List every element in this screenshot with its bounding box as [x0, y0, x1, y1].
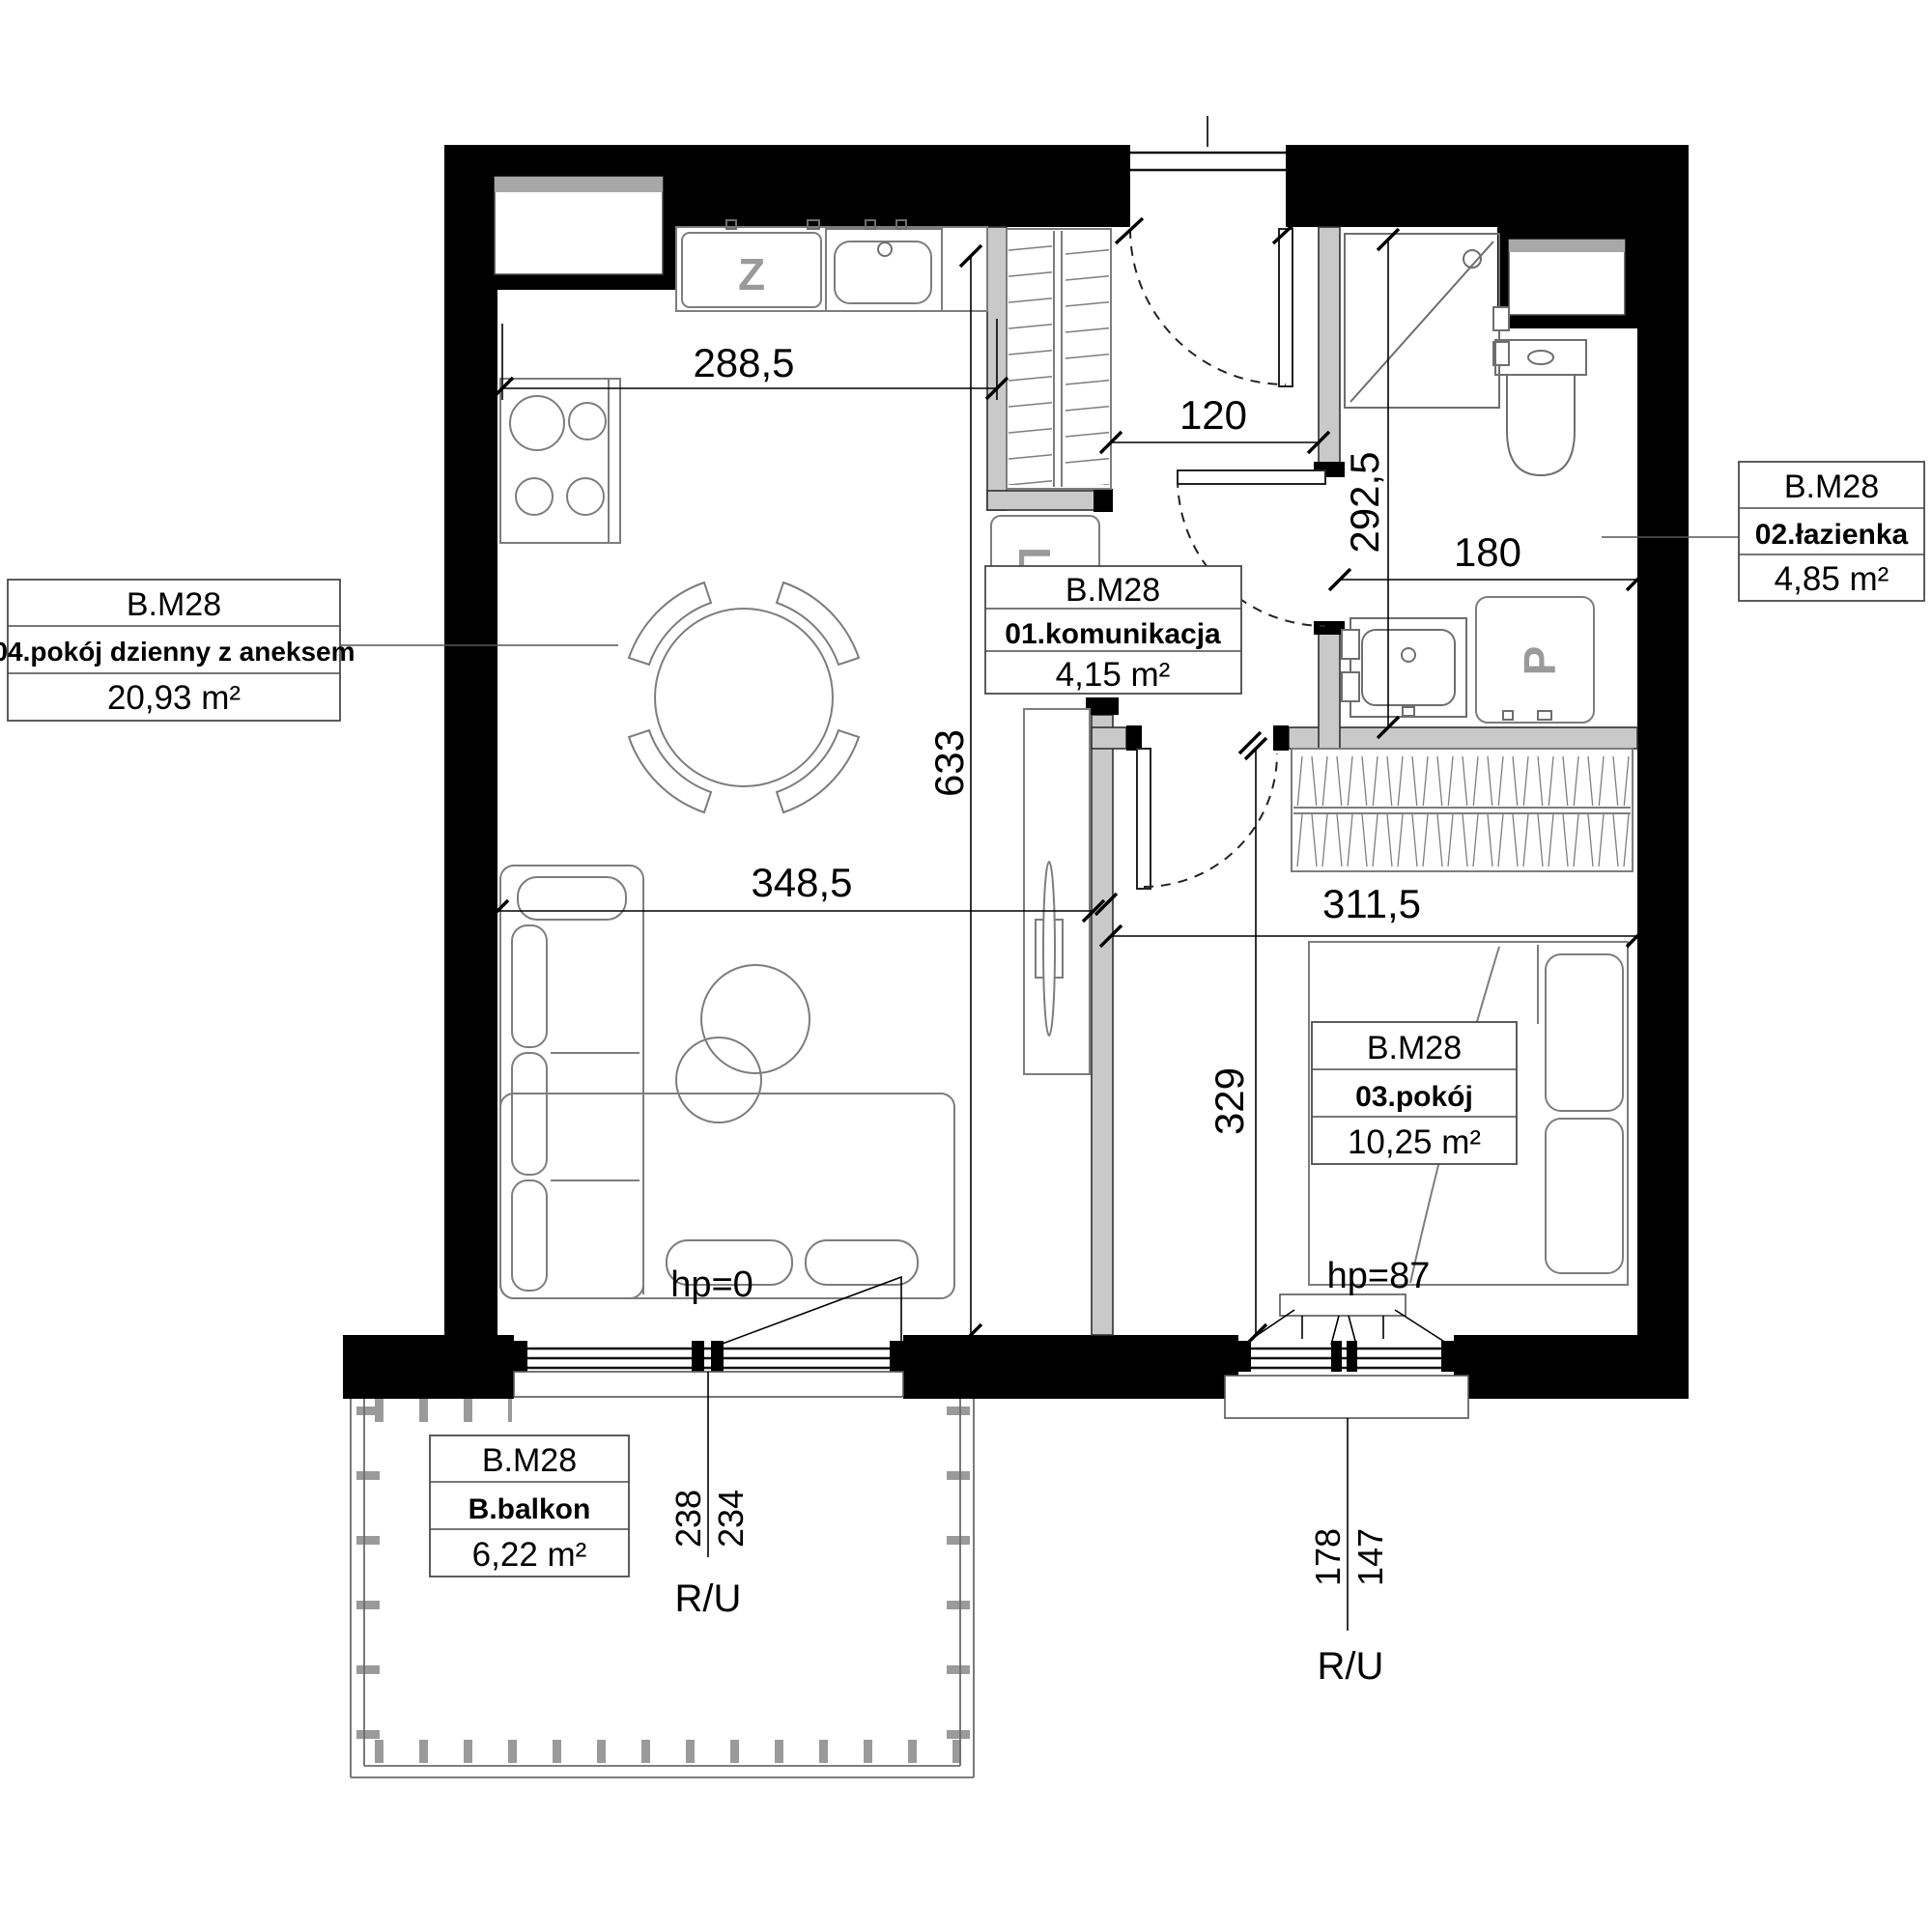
bedroom-radiator: [1280, 1294, 1406, 1316]
bathroom-door-jamb-bottom: [1314, 621, 1345, 635]
entrance: [1116, 116, 1300, 386]
bedroom-window-mullion-1: [1331, 1341, 1342, 1372]
wall-valve-2: [1342, 672, 1359, 701]
bed-pillow-1: [1546, 954, 1623, 1111]
living-label-box: B.M28 04.pokój dzienny z aneksem 20,93 m…: [0, 580, 355, 721]
burner-4: [567, 478, 604, 515]
balcony-door-type: R/U: [675, 1577, 742, 1620]
tv-cabinet: [1024, 709, 1090, 1074]
wall-valve-1: [1342, 630, 1359, 659]
balcony-door-jamb-right: [890, 1341, 903, 1372]
hall-label-area: 4,15 m²: [1056, 656, 1171, 694]
floor-plan-drawing: Z L P: [0, 0, 1932, 1932]
bedroom-parapet-text: hp=87: [1327, 1256, 1431, 1296]
bedroom-furniture: [1292, 749, 1633, 1285]
hall-wardrobe: [1007, 229, 1111, 489]
wall-bathroom-left-lower: [1319, 623, 1340, 749]
washing-machine-letter: P: [1515, 646, 1565, 676]
living-label-area: 20,93 m²: [107, 679, 241, 717]
bedroom-window-sill: [1225, 1376, 1468, 1418]
bathroom-label-unit: B.M28: [1784, 469, 1879, 505]
bedroom-window-jamb-left: [1238, 1341, 1251, 1372]
hall-label-unit: B.M28: [1065, 572, 1160, 609]
burner-1: [510, 396, 564, 450]
bedroom-wardrobe-hatch-top: [1293, 751, 1631, 806]
wall-hall-bottom-left-stub: [1092, 727, 1126, 749]
wall-bathroom-left-upper: [1319, 227, 1340, 464]
wall-cap-living-bedroom: [1086, 697, 1119, 715]
wall-bottom-middle-block: [903, 1335, 1238, 1399]
dim-bath-depth-text: 292,5: [1342, 451, 1387, 553]
tv-screen: [1043, 862, 1055, 1036]
dim-bath-width-text: 180: [1454, 529, 1521, 575]
bedroom-label-area: 10,25 m²: [1348, 1123, 1481, 1161]
balcony-label-name: B.balkon: [469, 1493, 591, 1525]
balcony-door-mullion-1: [692, 1341, 704, 1372]
bathroom-niche-frame: [1509, 240, 1625, 252]
sofa-back-cushion-3: [512, 1180, 547, 1291]
entrance-door-swing: [1130, 229, 1286, 384]
dishwasher-letter: Z: [738, 249, 765, 299]
dim-bedroom-width-text: 311,5: [1322, 881, 1421, 926]
bedroom-door-jamb-left: [1126, 725, 1142, 751]
wall-bottom-left-block: [343, 1335, 514, 1399]
hall-wardrobe-hatch-left: [1009, 233, 1052, 485]
sofa-back-cushion-1: [512, 925, 547, 1047]
bedroom-window-mullion-2: [1347, 1341, 1357, 1372]
shower-hinge-1: [1493, 307, 1509, 330]
dining-table: [655, 609, 833, 786]
balcony-door-jamb-left: [514, 1341, 527, 1372]
shower-diagonal: [1350, 241, 1493, 402]
bed-pillow-2: [1546, 1119, 1623, 1273]
bedroom-door-swing: [1144, 753, 1277, 887]
wall-hall-bottom-right: [1289, 727, 1637, 749]
chair-bottom-left: [629, 730, 711, 812]
bedroom-window-width-a: 178: [1308, 1528, 1348, 1586]
floor-plan-page: Z L P: [0, 0, 1932, 1932]
entrance-opening: [1130, 145, 1286, 228]
bedroom-window-jamb-right: [1441, 1341, 1454, 1372]
washbasin-faucet: [1403, 707, 1414, 716]
living-label-name: 04.pokój dzienny z aneksem: [0, 637, 355, 667]
bedroom-window-width-b: 147: [1350, 1528, 1390, 1586]
chair-bottom-right: [777, 730, 859, 812]
living-parapet-text: hp=0: [670, 1264, 753, 1305]
kitchen-niche-frame: [495, 177, 663, 192]
dim-bedroom-depth-text: 329: [1207, 1067, 1252, 1135]
bathroom-label-box: B.M28 02.łazienka 4,85 m²: [1739, 462, 1924, 601]
bathroom-label-name: 02.łazienka: [1755, 519, 1909, 551]
coffee-table-small: [676, 1037, 761, 1122]
wall-right: [1637, 145, 1689, 1399]
dim-living-width-text: 348,5: [751, 860, 852, 905]
dim-kitchen-text: 288,5: [693, 340, 794, 385]
balcony-label-area: 6,22 m²: [472, 1536, 587, 1574]
bedroom-window-type: R/U: [1318, 1645, 1384, 1688]
balcony-door-width-b: 234: [711, 1490, 751, 1548]
bedroom-label-name: 03.pokój: [1355, 1081, 1473, 1113]
bedroom-door-leaf: [1137, 749, 1151, 889]
balcony-door-width-a: 238: [668, 1490, 708, 1548]
washbasin-bowl: [1362, 630, 1455, 705]
hall-label-name: 01.komunikacja: [1005, 618, 1221, 650]
bedroom-label-unit: B.M28: [1367, 1030, 1462, 1066]
bedroom-wardrobe-hatch-bottom: [1293, 814, 1631, 869]
dim-hall-text: 120: [1179, 392, 1247, 438]
dim-bedroom-depth-tick-top2: [1239, 732, 1261, 753]
wall-living-bedroom: [1092, 715, 1113, 1335]
balcony-door-mullion-2: [711, 1341, 724, 1372]
chair-top-right: [777, 582, 859, 665]
bathroom-door-leaf: [1178, 470, 1325, 484]
burner-2: [569, 403, 606, 440]
dim-living-depth-text: 633: [926, 729, 972, 797]
bathroom-label-area: 4,85 m²: [1775, 560, 1889, 598]
burner-3: [516, 478, 553, 515]
living-label-unit: B.M28: [127, 586, 221, 623]
hall-label-box: B.M28 01.komunikacja 4,15 m²: [985, 566, 1241, 694]
wall-bottom-right-block: [1454, 1335, 1689, 1399]
chair-top-left: [629, 582, 711, 665]
wall-under-wardrobe: [987, 491, 1111, 510]
sofa-back-section: [500, 866, 643, 1298]
toilet-flush: [1528, 351, 1553, 364]
hall-wardrobe-hatch-right: [1064, 233, 1109, 485]
toilet-bowl: [1507, 375, 1575, 475]
wall-left: [444, 145, 497, 1335]
sofa-armrest-pillow: [518, 877, 626, 920]
balcony-label-box: B.M28 B.balkon 6,22 m²: [430, 1435, 629, 1577]
entrance-door-leaf: [1279, 229, 1293, 386]
sink-bowl: [835, 241, 931, 303]
wall-cap-wardrobe: [1094, 489, 1113, 512]
bedroom-door-jamb-right: [1273, 725, 1289, 751]
sofa-back-cushion-2: [512, 1053, 547, 1175]
balcony-label-unit: B.M28: [482, 1442, 577, 1479]
bedroom-label-box: B.M28 03.pokój 10,25 m²: [1312, 1022, 1517, 1164]
